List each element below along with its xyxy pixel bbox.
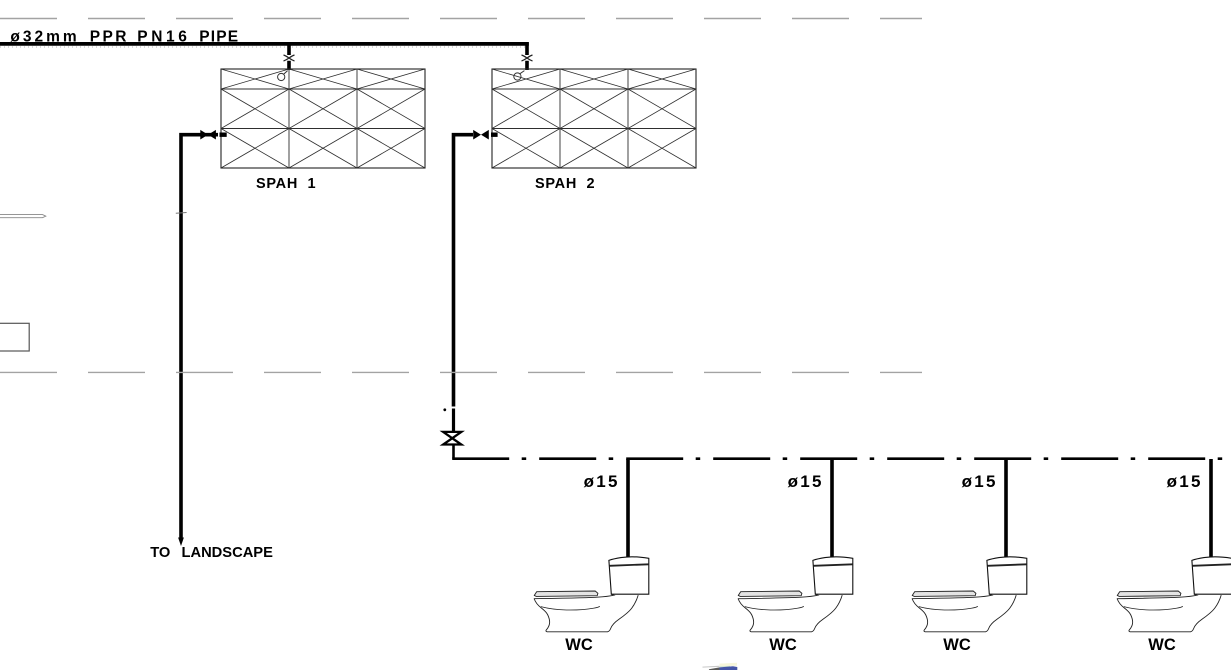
svg-text:SPAH 1: SPAH 1 <box>256 176 316 192</box>
svg-text:SPAH 2: SPAH 2 <box>535 176 595 192</box>
svg-text:LANDSCAPE: LANDSCAPE <box>182 545 274 561</box>
svg-text:TO: TO <box>150 545 170 561</box>
